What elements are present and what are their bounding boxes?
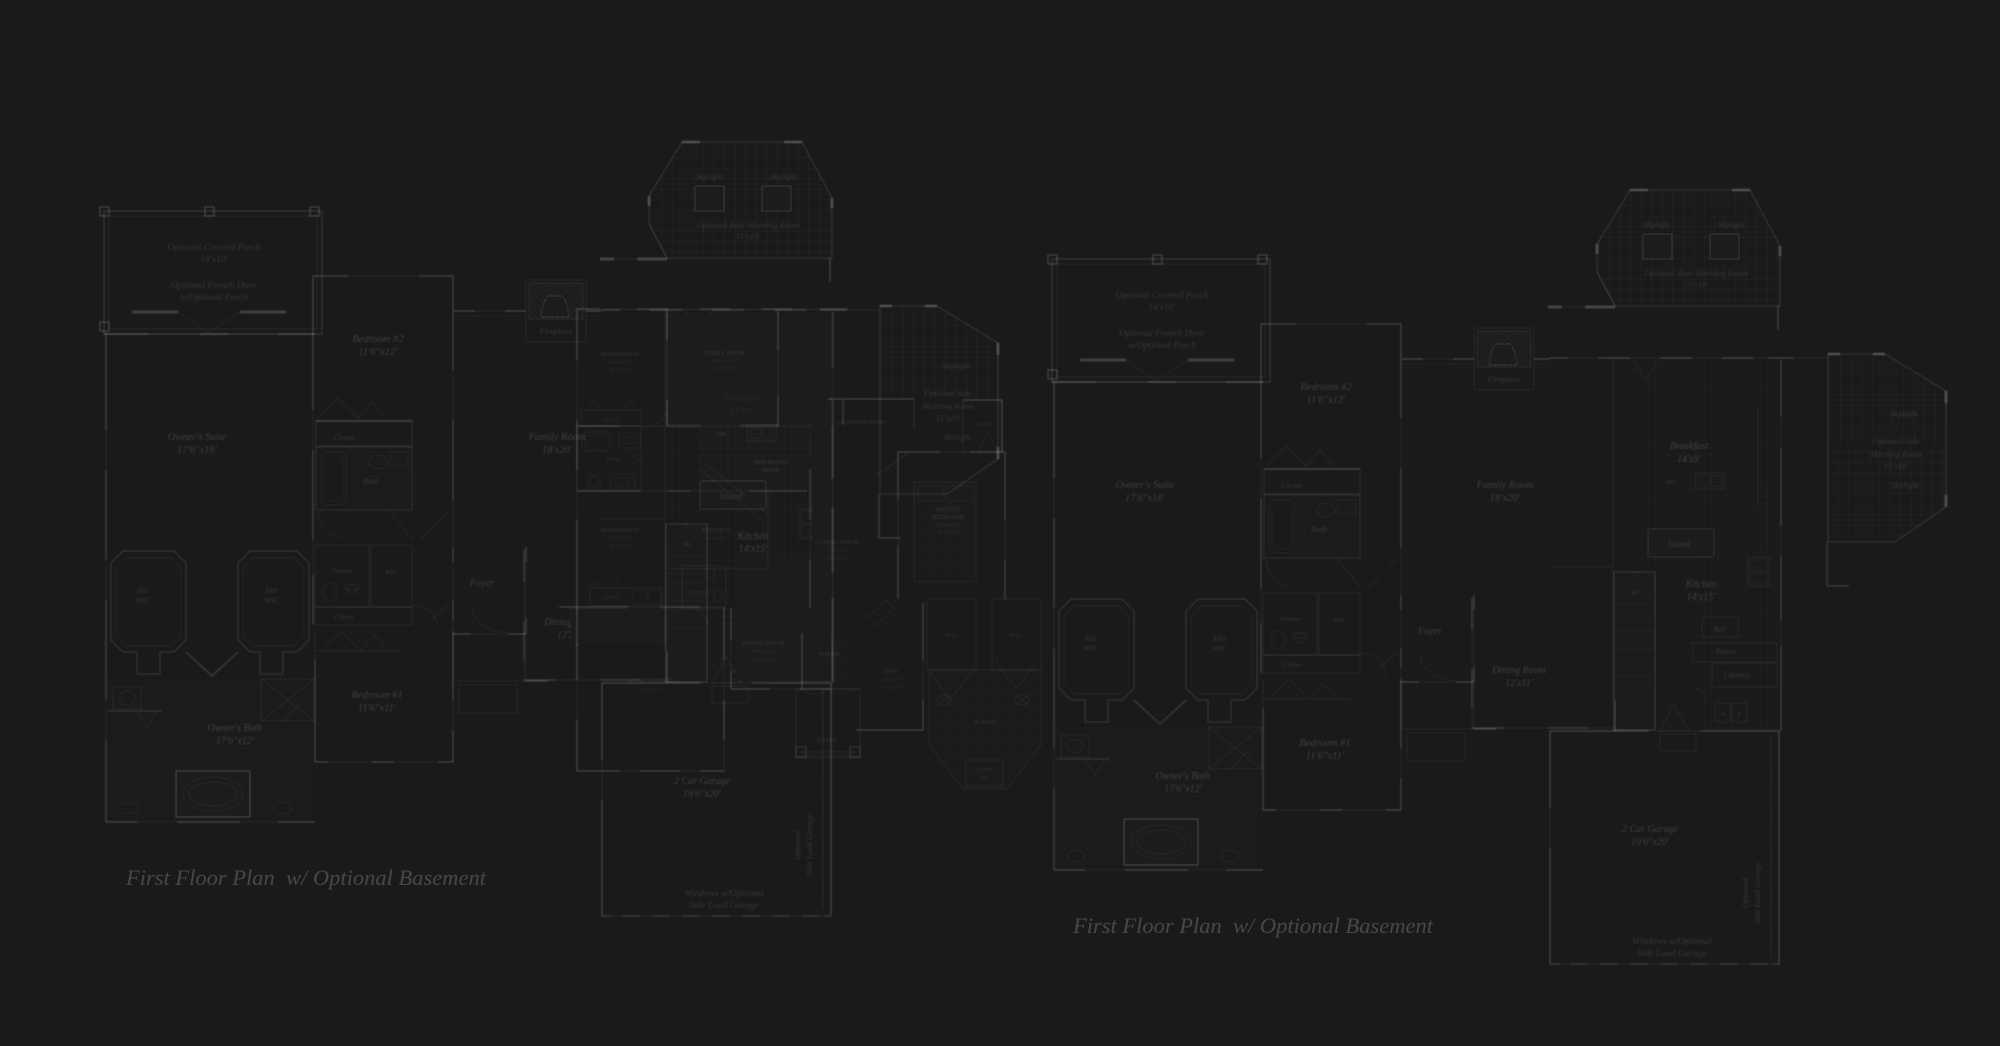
svg-text:KITCHEN: KITCHEN — [701, 527, 730, 534]
svg-text:ENTRY: ENTRY — [816, 737, 838, 744]
svg-text:(9' CLNG): (9' CLNG) — [609, 368, 631, 373]
svg-text:20'0"x21'0": 20'0"x21'0" — [639, 688, 663, 693]
svg-text:NOOK: NOOK — [761, 467, 781, 474]
svg-text:15'0"x22'6": 15'0"x22'6" — [826, 549, 850, 554]
svg-text:(9' CLNG): (9' CLNG) — [713, 367, 735, 372]
svg-text:TUB: TUB — [980, 775, 988, 780]
svg-text:M. BATH: M. BATH — [974, 720, 997, 726]
svg-text:UTILITY: UTILITY — [690, 591, 711, 597]
svg-text:COVERED PATIO: COVERED PATIO — [838, 419, 887, 426]
svg-text:19'6"x16'0": 19'6"x16'0" — [712, 360, 736, 365]
svg-text:First Floor Plan w/ Optional: First Floor Plan w/ Optional Basement — [125, 865, 487, 890]
svg-text:W.I.C.: W.I.C. — [1009, 633, 1023, 639]
svg-text:GARDEN: GARDEN — [976, 767, 992, 772]
svg-text:FAMILY ROOM: FAMILY ROOM — [702, 350, 746, 357]
svg-text:(9' CLNG): (9' CLNG) — [827, 557, 849, 562]
svg-text:11'6"x11'0": 11'6"x11'0" — [609, 537, 633, 542]
svg-text:BEDROOM #2: BEDROOM #2 — [600, 527, 640, 534]
svg-text:11'0"x12'0": 11'0"x12'0" — [879, 678, 903, 683]
svg-text:(9' CLNG): (9' CLNG) — [609, 545, 631, 550]
svg-text:FOYER: FOYER — [818, 651, 839, 658]
svg-text:First Floor Plan w/ Optional: First Floor Plan w/ Optional Basement — [1072, 913, 1434, 938]
svg-text:BREAKFAST: BREAKFAST — [754, 459, 789, 466]
svg-text:CLOSET: CLOSET — [603, 418, 622, 423]
svg-text:(9' CLNG): (9' CLNG) — [880, 686, 902, 691]
svg-text:DEN: DEN — [884, 668, 899, 675]
svg-text:BATH: BATH — [977, 422, 992, 428]
svg-text:CLOSET: CLOSET — [603, 596, 622, 601]
svg-text:DINING ROOM: DINING ROOM — [741, 640, 785, 647]
svg-text:Breakfast: Breakfast — [722, 393, 760, 404]
svg-text:BATH: BATH — [606, 457, 621, 463]
svg-text:(9' CLNG): (9' CLNG) — [752, 658, 774, 663]
svg-text:2 CAR GARAGE: 2 CAR GARAGE — [629, 677, 673, 684]
svg-text:10'6"x13': 10'6"x13' — [707, 537, 727, 542]
svg-text:W.I.C.: W.I.C. — [945, 633, 959, 639]
svg-text:BEDROOM #3: BEDROOM #3 — [600, 351, 640, 358]
svg-text:11'0"x13'6": 11'0"x13'6" — [751, 650, 775, 655]
svg-text:LIVING ROOM: LIVING ROOM — [816, 539, 859, 546]
svg-text:14'x9': 14'x9' — [729, 406, 754, 417]
svg-text:12'0"x11'6": 12'0"x11'6" — [608, 361, 632, 366]
